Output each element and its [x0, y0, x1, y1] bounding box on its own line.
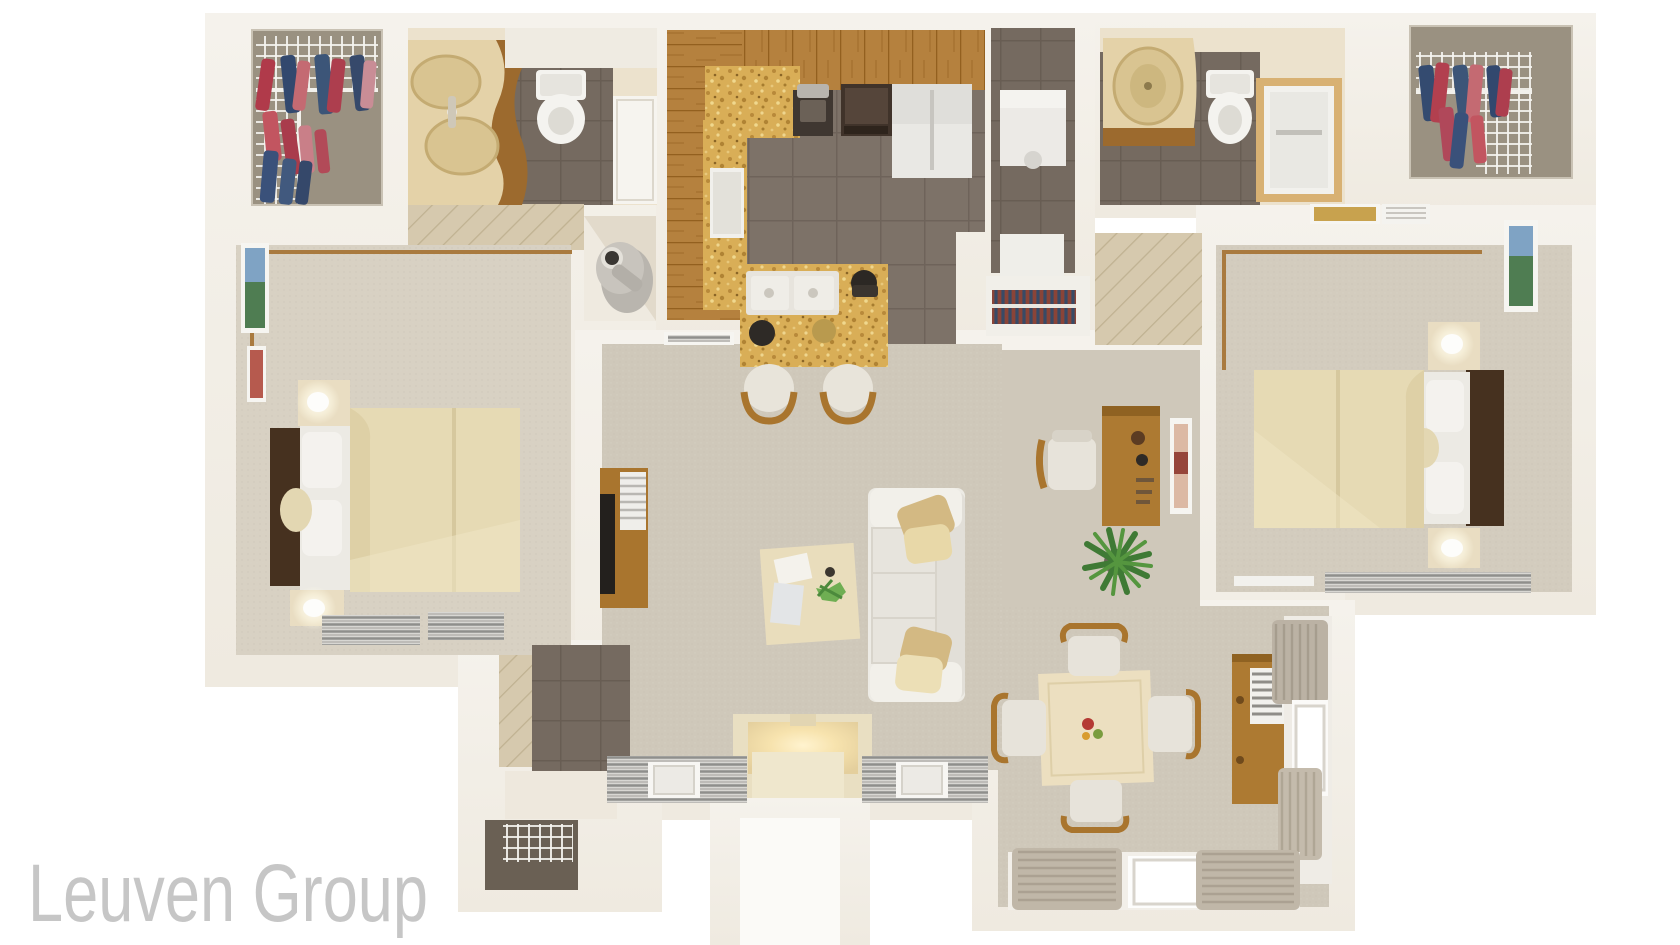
svg-text:Leuven Group: Leuven Group	[28, 848, 428, 939]
